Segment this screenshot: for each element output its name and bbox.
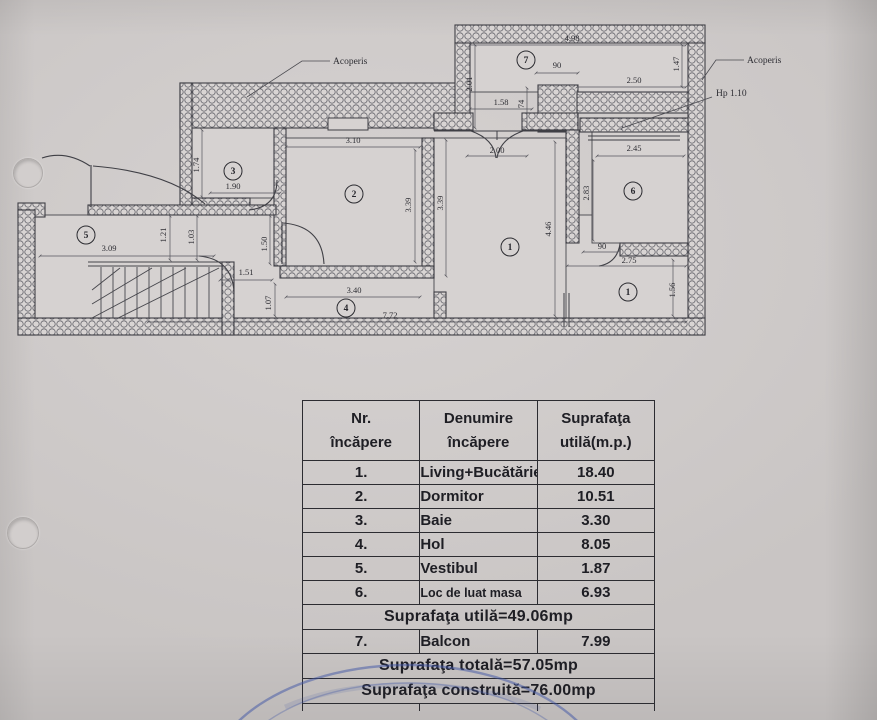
column-header: Denumireîncăpere — [420, 401, 537, 461]
plan-annotation: Acoperis — [333, 57, 368, 67]
summary-cell: Suprafaţa totală=57.05mp — [303, 654, 655, 679]
hole-punch-top — [13, 158, 43, 188]
room-number-cell: 4. — [303, 533, 420, 557]
column-header: Nr.încăpere — [303, 401, 420, 461]
dimension-label: 2.45 — [627, 143, 642, 153]
dimension-label: 4.98 — [565, 33, 580, 43]
room-number-cell: 2. — [303, 485, 420, 509]
room-number: 6 — [631, 187, 636, 197]
room-number: 2 — [352, 190, 357, 200]
room-name-cell: Dormitor — [420, 485, 537, 509]
partial-cell — [537, 704, 654, 712]
dimension-label: 4.46 — [543, 222, 553, 237]
column-header-line: Suprafaţa — [538, 407, 654, 430]
dimension-label: 74 — [516, 99, 526, 108]
dimension-label: 2.50 — [627, 75, 642, 85]
room-number: 1 — [508, 243, 513, 253]
column-header-line: utilă(m.p.) — [538, 431, 654, 454]
room-area-cell: 7.99 — [537, 630, 654, 654]
summary-row: Suprafaţa construită=76.00mp — [303, 679, 655, 704]
dimension-label: 1.56 — [667, 283, 677, 298]
areas-table-body: 1.Living+Bucătărie18.402.Dormitor10.513.… — [303, 461, 655, 712]
dimension-label: 1.03 — [186, 230, 196, 245]
dimension-label: 1.50 — [259, 237, 269, 252]
column-header-line: încăpere — [303, 431, 419, 454]
dimension-label: 3.40 — [347, 285, 362, 295]
room-row: 3.Baie3.30 — [303, 509, 655, 533]
dimension-label: 1.47 — [671, 57, 681, 72]
summary-cell: Suprafaţa construită=76.00mp — [303, 679, 655, 704]
floor-plan-drawing: 4.98902.501.472.011.58742.003.102.451.74… — [0, 0, 877, 370]
partial-cell — [420, 704, 537, 712]
room-number-cell: 6. — [303, 581, 420, 605]
areas-table-wrap: Nr.încăpereDenumireîncăpereSuprafaţautil… — [302, 400, 655, 711]
dimension-label: 90 — [553, 60, 562, 70]
areas-table-header: Nr.încăpereDenumireîncăpereSuprafaţautil… — [303, 401, 655, 461]
room-area-cell: 10.51 — [537, 485, 654, 509]
room-name-cell: Living+Bucătărie — [420, 461, 537, 485]
column-header-line: încăpere — [420, 431, 536, 454]
header-row: Nr.încăpereDenumireîncăpereSuprafaţautil… — [303, 401, 655, 461]
room-row: 5.Vestibul1.87 — [303, 557, 655, 581]
room-name-cell: Hol — [420, 533, 537, 557]
dimension-label: 1.58 — [494, 97, 509, 107]
dimension-label: 3.39 — [403, 198, 413, 213]
scanned-floor-plan-page: 4.98902.501.472.011.58742.003.102.451.74… — [0, 0, 877, 720]
areas-table: Nr.încăpereDenumireîncăpereSuprafaţautil… — [302, 400, 655, 711]
room-name-cell: Vestibul — [420, 557, 537, 581]
room-row: 2.Dormitor10.51 — [303, 485, 655, 509]
dimension-label: 1.07 — [263, 296, 273, 311]
dimension-label: 7.72 — [383, 310, 398, 320]
column-header: Suprafaţautilă(m.p.) — [537, 401, 654, 461]
room-number: 7 — [524, 56, 529, 66]
dimension-label: 90 — [598, 241, 607, 251]
dimension-label: 1.90 — [226, 181, 241, 191]
room-number-cell: 3. — [303, 509, 420, 533]
room-number: 4 — [344, 304, 349, 314]
dimension-label: 1.51 — [239, 267, 254, 277]
room-number: 3 — [231, 167, 236, 177]
dimension-label: 1.21 — [158, 228, 168, 243]
partial-row — [303, 704, 655, 712]
room-number: 1 — [626, 288, 631, 298]
wall-notch — [328, 118, 368, 130]
dimension-label: 3.09 — [102, 243, 117, 253]
room-number-cell: 1. — [303, 461, 420, 485]
plan-annotation: Hp 1.10 — [716, 89, 747, 99]
summary-row: Suprafaţa utilă=49.06mp — [303, 605, 655, 630]
dimension-label: 2.83 — [581, 186, 591, 201]
room-row: 1.Living+Bucătărie18.40 — [303, 461, 655, 485]
room-area-cell: 8.05 — [537, 533, 654, 557]
room-name-cell: Baie — [420, 509, 537, 533]
room-area-cell: 3.30 — [537, 509, 654, 533]
plan-annotation: Acoperis — [747, 56, 782, 66]
summary-cell: Suprafaţa utilă=49.06mp — [303, 605, 655, 630]
room-number-cell: 5. — [303, 557, 420, 581]
dimension-label: 3.10 — [346, 135, 361, 145]
dimension-label: 2.01 — [464, 77, 474, 92]
hole-punch-bottom — [7, 517, 39, 549]
dimension-label: 3.39 — [435, 196, 445, 211]
room-number-cell: 7. — [303, 630, 420, 654]
room-area-cell: 6.93 — [537, 581, 654, 605]
room-row: 4.Hol8.05 — [303, 533, 655, 557]
column-header-line: Denumire — [420, 407, 536, 430]
partial-cell — [303, 704, 420, 712]
room-area-cell: 1.87 — [537, 557, 654, 581]
room-row: 6.Loc de luat masa6.93 — [303, 581, 655, 605]
room-name-cell: Balcon — [420, 630, 537, 654]
dimension-label: 1.74 — [191, 157, 201, 173]
dimension-label: 2.00 — [490, 145, 505, 155]
room-row: 7.Balcon7.99 — [303, 630, 655, 654]
dimension-label: 2.75 — [622, 255, 637, 265]
summary-row: Suprafaţa totală=57.05mp — [303, 654, 655, 679]
room-number: 5 — [84, 231, 89, 241]
room-name-cell: Loc de luat masa — [420, 581, 537, 605]
column-header-line: Nr. — [303, 407, 419, 430]
room-area-cell: 18.40 — [537, 461, 654, 485]
